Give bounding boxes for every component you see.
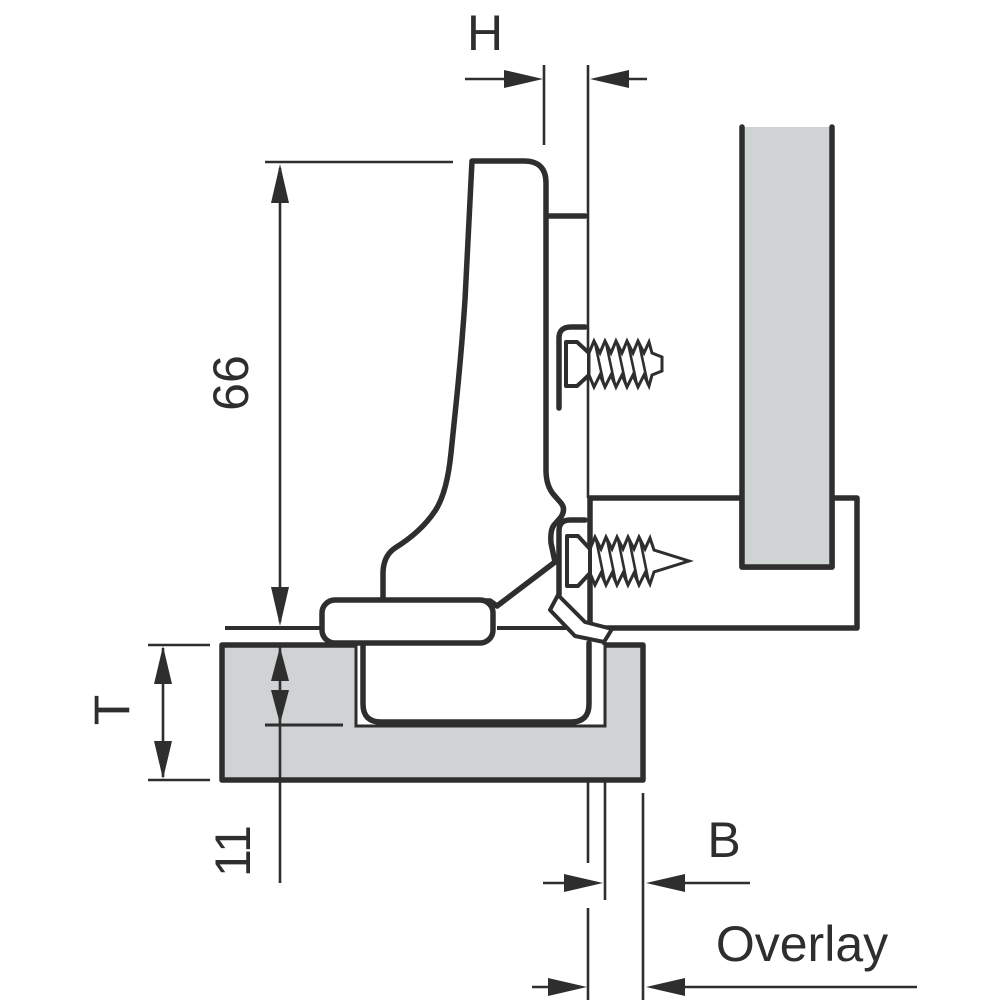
dim-b-arrowhead-right [646,874,685,892]
hinge-arm [383,161,564,606]
dim-t-arrowhead-bottom [154,741,172,779]
technical-drawing-canvas: H 66 T 11 B Overlay [0,0,1000,1000]
lower-screw-head [567,536,590,586]
cup-flange [322,600,493,643]
dim-t-label: T [84,695,140,726]
dim-11-label: 11 [205,825,261,877]
upper-screw-head [566,342,589,386]
dim-t-arrowhead-top [154,646,172,684]
hinge-cross-section-diagram: H 66 T 11 B Overlay [0,0,1000,1000]
dim-b-arrowhead-left [564,874,603,892]
dim-h-arrowhead-left [504,70,543,88]
dim-overlay-label: Overlay [716,916,888,972]
dim-h-arrowhead-right [590,70,629,88]
dim-overlay-arrowhead-right [646,978,685,996]
dimension-overlay: Overlay [532,916,917,996]
dim-66-arrowhead-top [271,164,289,203]
dimension-H: H [465,5,647,145]
lower-screw [567,536,689,586]
dim-overlay-arrowhead-left [548,978,587,996]
dim-66-label: 66 [203,355,259,411]
dim-h-label: H [467,5,503,61]
dim-66-arrowhead-bottom [271,587,289,626]
hinge-cup [363,643,589,722]
plate-claw [550,595,612,642]
dim-t-ext-lines [148,645,210,780]
dimension-T: T [84,645,210,780]
cabinet-side-panel [742,127,832,567]
cabinet-side-panel-fill [742,127,832,567]
dim-b-label: B [707,812,740,868]
upper-screw [566,341,662,387]
